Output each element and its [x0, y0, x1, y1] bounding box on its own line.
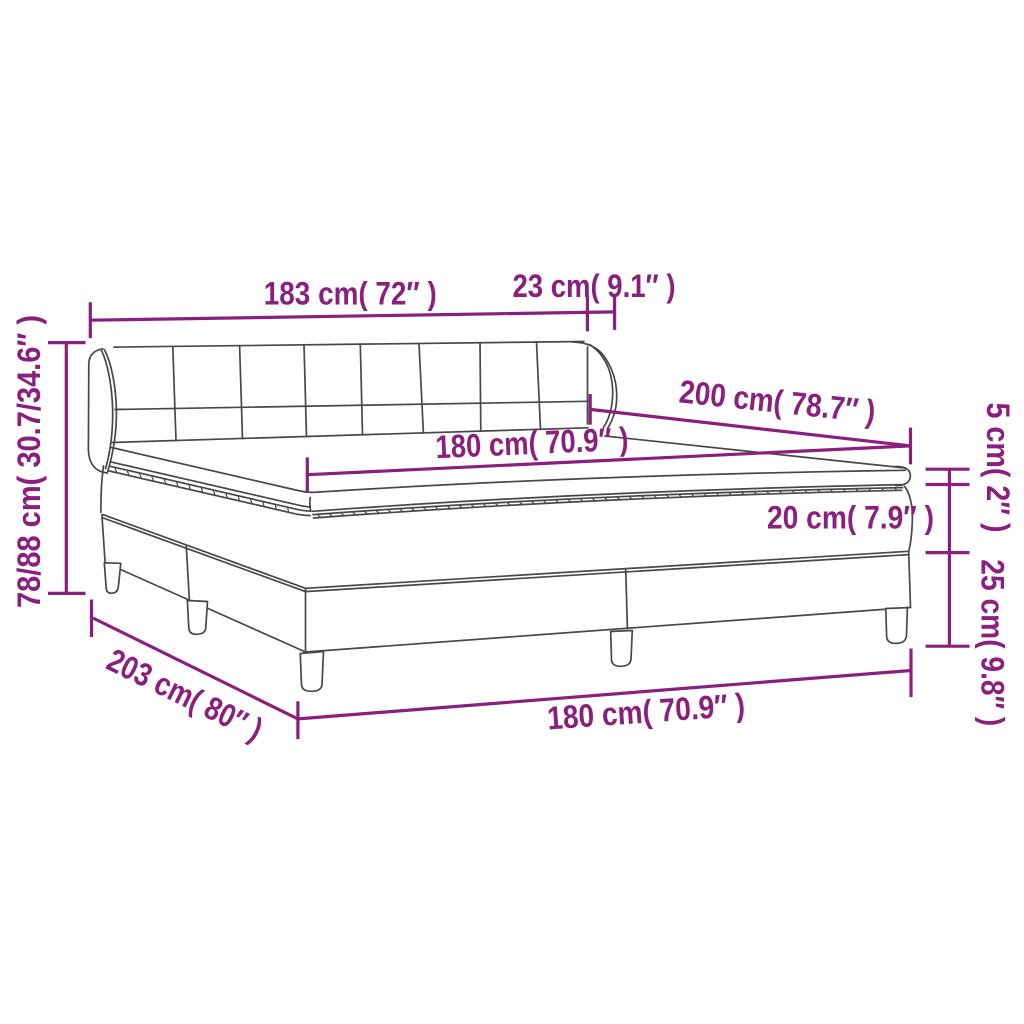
svg-text:20 cm( 7.9″ ): 20 cm( 7.9″ ) — [767, 498, 934, 535]
svg-text:5 cm( 2″ ): 5 cm( 2″ ) — [980, 403, 1017, 533]
svg-text:78/88 cm( 30.7/34.6″ ): 78/88 cm( 30.7/34.6″ ) — [10, 315, 47, 608]
svg-text:183 cm( 72″ ): 183 cm( 72″ ) — [264, 274, 437, 311]
svg-text:25 cm( 9.8″ ): 25 cm( 9.8″ ) — [975, 559, 1012, 726]
svg-text:180 cm( 70.9″ ): 180 cm( 70.9″ ) — [546, 686, 746, 737]
svg-text:23 cm( 9.1″ ): 23 cm( 9.1″ ) — [513, 267, 676, 304]
svg-text:180 cm( 70.9″ ): 180 cm( 70.9″ ) — [435, 420, 629, 465]
svg-text:203 cm( 80″ ): 203 cm( 80″ ) — [101, 641, 268, 748]
